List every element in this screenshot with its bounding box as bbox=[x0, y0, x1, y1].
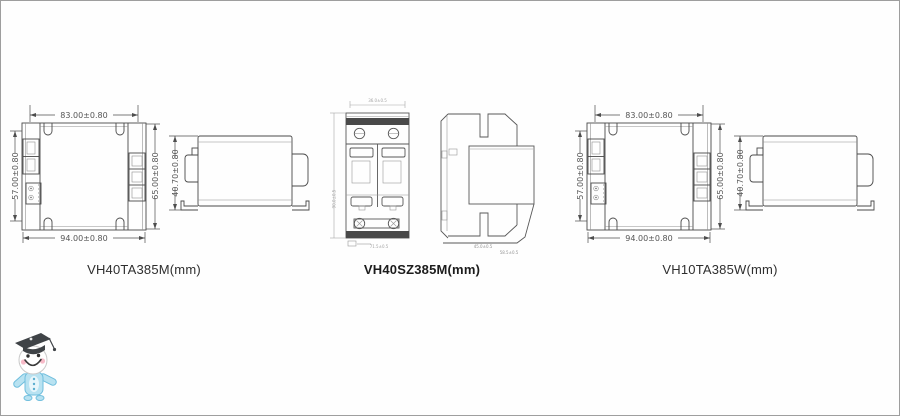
side-view: 40.70±0.80 bbox=[169, 136, 309, 210]
vh10ta385w-svg: 83.00±0.80 94.00±0.80 57.00±0.80 bbox=[568, 96, 878, 256]
side-view: 45.0±0.5 58.5±0.5 bbox=[441, 114, 534, 255]
dim-top-tiny: 36.0±0.5 bbox=[368, 98, 387, 103]
side-view: 40.70±0.80 bbox=[734, 136, 874, 210]
dimension-bottom: 94.00±0.80 bbox=[23, 232, 145, 243]
dim-height-left: 57.00±0.80 bbox=[576, 152, 585, 199]
dimension-top: 83.00±0.80 bbox=[30, 105, 138, 122]
page: 83.00±0.80 94.00±0.80 57.00±0.80 bbox=[0, 0, 900, 416]
vh40sz385m-svg: 36.0±0.5 90.0±0.5 71.5±0.5 45 bbox=[321, 91, 556, 266]
dim-depth-side: 40.70±0.80 bbox=[736, 149, 745, 196]
front-view bbox=[587, 123, 711, 230]
vh10ta385w-drawing: 83.00±0.80 94.00±0.80 57.00±0.80 bbox=[568, 96, 878, 256]
dimension-right: 65.00±0.80 bbox=[146, 124, 160, 229]
dimension-right: 65.00±0.80 bbox=[711, 124, 725, 229]
dim-width-bottom: 94.00±0.80 bbox=[625, 234, 672, 243]
front-view bbox=[346, 113, 409, 246]
gongboshi-logo: ® 工博士 智能工厂服务商 www.gongboshi.com bbox=[1, 329, 191, 413]
dim-depth-side: 40.70±0.80 bbox=[171, 149, 180, 196]
label-vh10ta385w: VH10TA385W(mm) bbox=[662, 262, 777, 277]
dim-left-tiny: 90.0±0.5 bbox=[332, 189, 337, 208]
dim-height-right: 65.00±0.80 bbox=[151, 152, 160, 199]
dim-side-a-tiny: 45.0±0.5 bbox=[474, 244, 493, 249]
dim-width-bottom: 94.00±0.80 bbox=[60, 234, 107, 243]
dimension-left: 57.00±0.80 bbox=[10, 131, 22, 221]
vh40ta385m-svg: 83.00±0.80 94.00±0.80 57.00±0.80 bbox=[3, 96, 313, 256]
dim-height-left: 57.00±0.80 bbox=[11, 152, 20, 199]
dimension-top: 83.00±0.80 bbox=[595, 105, 703, 122]
dimension-left: 57.00±0.80 bbox=[575, 131, 587, 221]
label-vh40ta385m: VH40TA385M(mm) bbox=[87, 262, 201, 277]
dim-side-b-tiny: 58.5±0.5 bbox=[500, 250, 519, 255]
dim-bottom-tiny: 71.5±0.5 bbox=[370, 244, 389, 249]
aux-connector bbox=[591, 183, 606, 204]
mascot-icon bbox=[11, 331, 65, 403]
front-view bbox=[22, 123, 146, 230]
label-vh40sz385m: VH40SZ385M(mm) bbox=[364, 262, 480, 277]
dim-height-right: 65.00±0.80 bbox=[716, 152, 725, 199]
dimension-bottom: 94.00±0.80 bbox=[588, 232, 710, 243]
dim-width-top: 83.00±0.80 bbox=[60, 111, 107, 120]
dim-width-top: 83.00±0.80 bbox=[625, 111, 672, 120]
vh40ta385m-drawing: 83.00±0.80 94.00±0.80 57.00±0.80 bbox=[3, 96, 313, 256]
aux-connector bbox=[26, 183, 41, 204]
vh40sz385m-drawing: 36.0±0.5 90.0±0.5 71.5±0.5 45 bbox=[321, 91, 556, 266]
